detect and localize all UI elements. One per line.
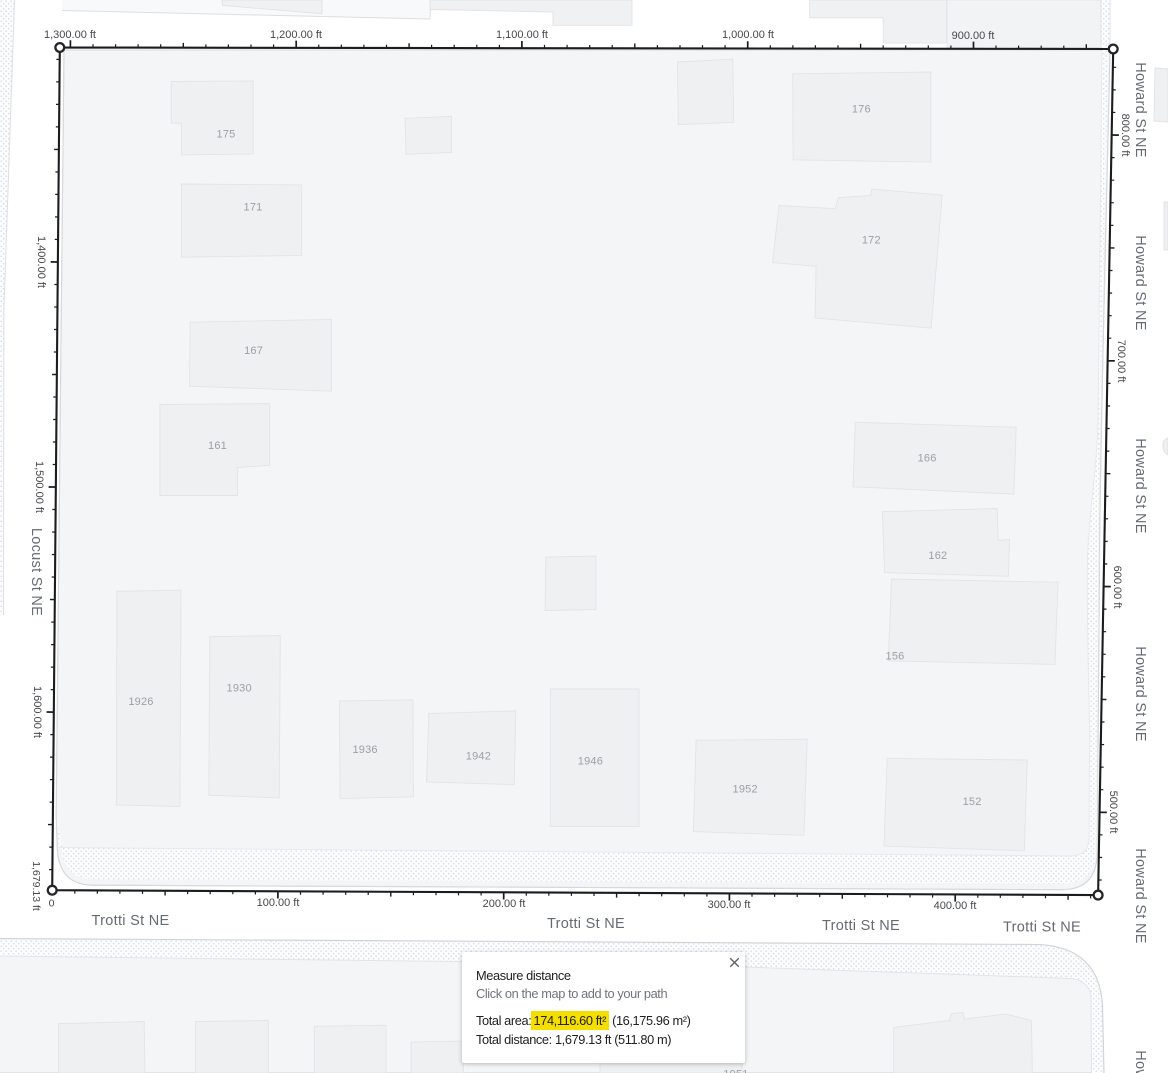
svg-text:171: 171 [244,202,263,214]
svg-text:1930: 1930 [227,683,252,695]
svg-text:1926: 1926 [128,696,153,708]
svg-text:300.00 ft: 300.00 ft [708,899,751,911]
svg-text:200.00 ft: 200.00 ft [483,898,526,910]
svg-text:1936: 1936 [352,744,377,756]
svg-text:162: 162 [928,550,947,562]
svg-text:1,500.00 ft: 1,500.00 ft [33,461,45,513]
svg-text:Trotti St NE: Trotti St NE [547,916,625,932]
svg-text:166: 166 [918,453,937,465]
svg-text:1,300.00 ft: 1,300.00 ft [44,29,96,41]
svg-text:156: 156 [886,651,905,663]
svg-text:1,400.00 ft: 1,400.00 ft [35,236,47,288]
svg-text:Trotti St NE: Trotti St NE [92,913,170,929]
svg-text:175: 175 [217,129,236,141]
svg-text:400.00 ft: 400.00 ft [934,900,977,912]
svg-text:100.00 ft: 100.00 ft [257,897,300,909]
svg-text:500.00 ft: 500.00 ft [1107,791,1119,834]
svg-text:172: 172 [862,234,881,246]
svg-text:1952: 1952 [733,783,758,795]
svg-text:Howard St NE: Howard St NE [1132,848,1148,943]
svg-text:Trotti St NE: Trotti St NE [822,918,900,934]
svg-text:161: 161 [208,440,227,452]
svg-text:800.00 ft: 800.00 ft [1119,114,1131,157]
svg-text:1942: 1942 [466,750,491,762]
svg-text:1,100.00 ft: 1,100.00 ft [496,29,548,41]
svg-text:Howard St NE: Howard St NE [1132,646,1148,741]
svg-text:1946: 1946 [578,756,603,768]
svg-text:900.00 ft: 900.00 ft [952,30,995,42]
svg-text:Howard St NE: Howard St NE [1132,438,1148,533]
svg-text:1,600.00 ft: 1,600.00 ft [31,686,43,738]
svg-text:176: 176 [852,104,871,116]
svg-text:600.00 ft: 600.00 ft [1111,566,1123,609]
svg-text:167: 167 [244,345,263,357]
svg-text:Howard St NE: Howard St NE [1132,235,1148,330]
svg-text:1,000.00 ft: 1,000.00 ft [722,29,774,41]
svg-text:Howard St NE: Howard St NE [1132,62,1148,157]
svg-text:Howard St NE: Howard St NE [1132,1050,1148,1073]
svg-text:152: 152 [963,796,982,808]
svg-text:1,679.13 ft: 1,679.13 ft [30,861,42,911]
svg-text:Trotti St NE: Trotti St NE [1003,920,1081,936]
svg-text:1,200.00 ft: 1,200.00 ft [270,29,322,41]
svg-text:700.00 ft: 700.00 ft [1115,340,1127,383]
svg-text:Locust St NE: Locust St NE [28,528,44,616]
svg-text:1951: 1951 [723,1069,748,1073]
svg-text:0: 0 [49,898,55,910]
